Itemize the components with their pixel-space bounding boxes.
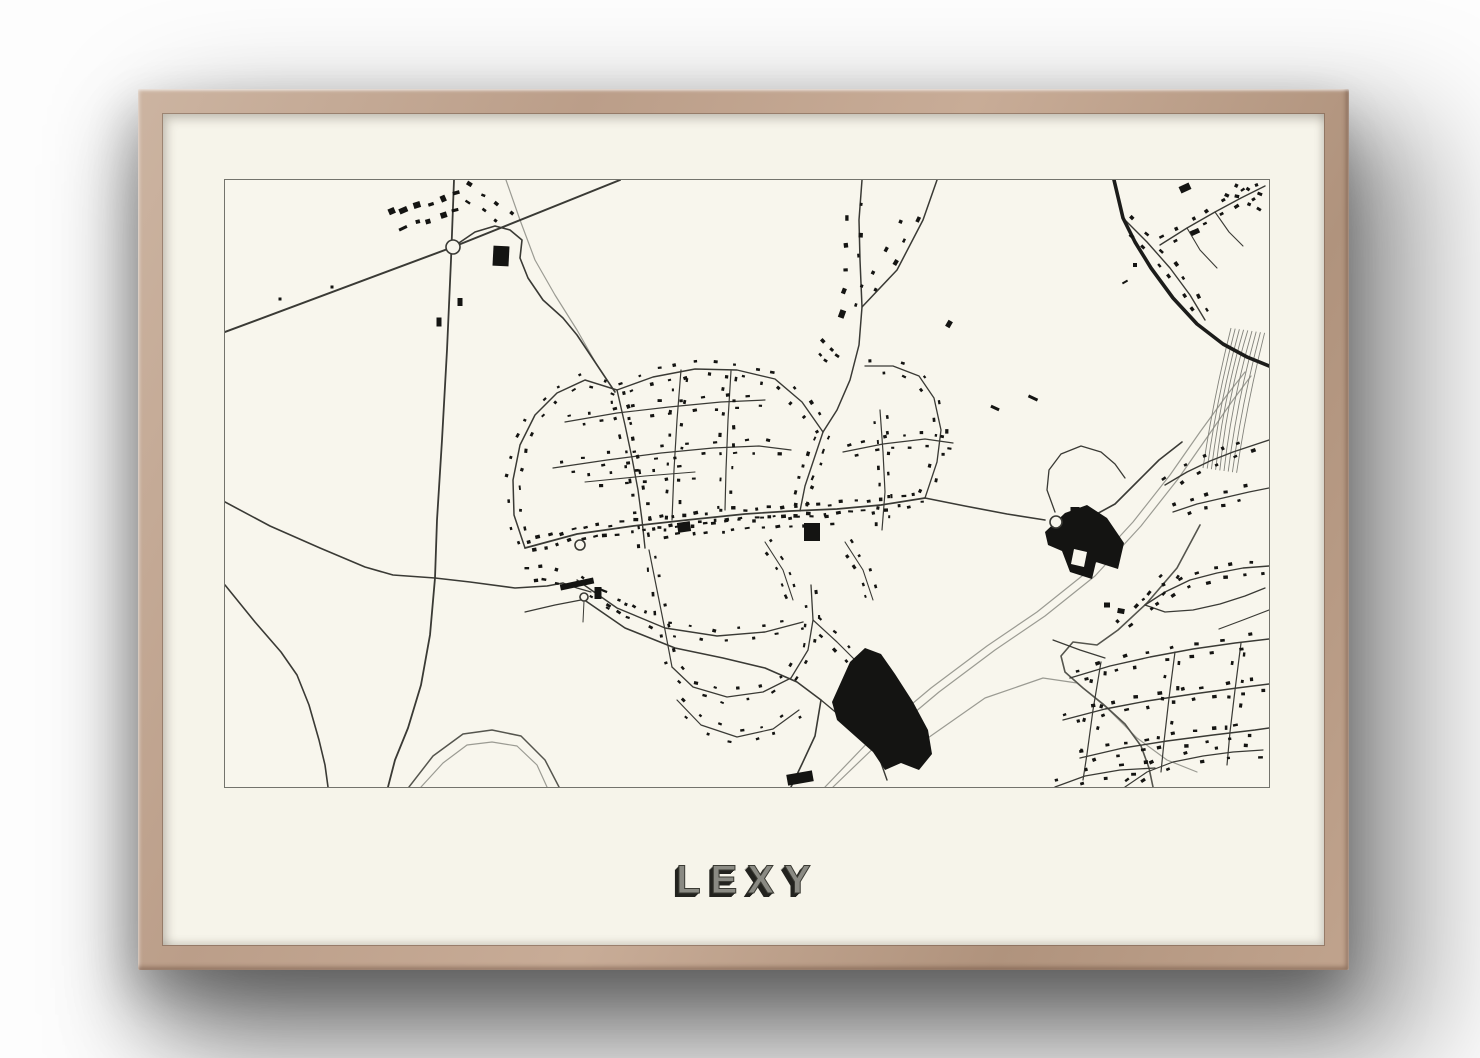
map-print	[224, 179, 1270, 788]
poster-frame: LEXY	[138, 89, 1349, 970]
poster-title: LEXY	[163, 858, 1324, 903]
page-background: { "poster": { "title": "LEXY", "frame_co…	[0, 0, 1480, 1058]
buildings-layer	[387, 181, 1265, 786]
poster-mat: LEXY	[163, 114, 1324, 945]
scene: LEXY	[0, 0, 1480, 1058]
roads-layer	[225, 180, 1269, 787]
street-map	[225, 180, 1269, 787]
